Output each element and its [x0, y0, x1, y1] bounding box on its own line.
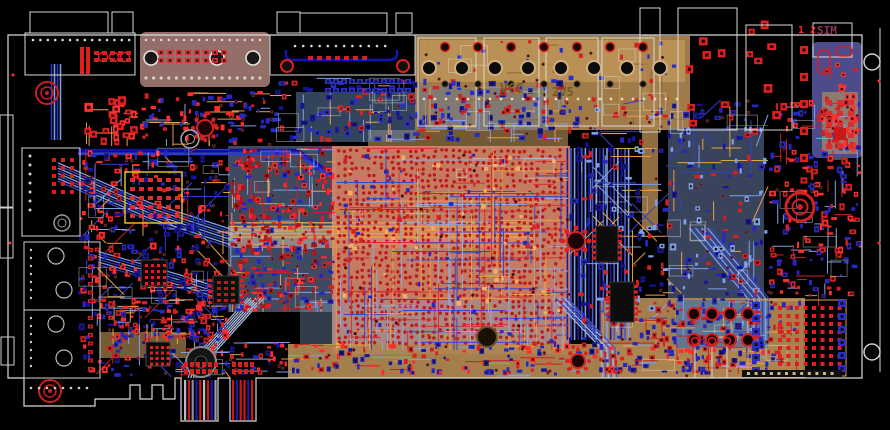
blue-pad-row-1: [325, 79, 411, 84]
plane-label-2v5: 2V5: [552, 85, 574, 99]
edge-red-dot-3: [878, 80, 881, 83]
bottom-ring-pad-2: [709, 338, 716, 345]
blue-pad-row-2: [325, 88, 411, 93]
via-flower-1: [561, 226, 592, 257]
bottom-ring-pad-3: [724, 338, 731, 345]
sim-label-num: 1 2: [798, 25, 816, 36]
vga-red-bar-2: [86, 47, 90, 74]
dvi-barrel-1: [144, 51, 158, 65]
conn3-jack-1: [281, 60, 293, 72]
conn3-jack-2: [397, 60, 409, 72]
vga-red-bar-1: [80, 47, 84, 74]
chip-c-body: [610, 282, 634, 322]
pcb-board-view: VCC2V51 2SIM: [0, 0, 890, 430]
dvi-barrel-3: [246, 51, 260, 65]
pcb-layout-canvas[interactable]: VCC2V51 2SIM: [0, 0, 890, 430]
sim-red-square: [834, 128, 846, 140]
edge-fingers-tab1: [184, 380, 217, 420]
edge-red-dot-2: [9, 242, 12, 245]
edge-red-dot-1: [12, 74, 15, 77]
sim-label: SIM: [817, 24, 837, 37]
via-flower-2: [565, 348, 591, 374]
edge-red-dot-4: [878, 242, 881, 245]
plane-label-vcc: VCC: [500, 82, 523, 97]
bottom-ring-pad-1: [692, 338, 699, 345]
via-flower-3: [191, 114, 219, 142]
chip-b-body: [596, 226, 618, 262]
keepout-circle: [477, 327, 497, 347]
